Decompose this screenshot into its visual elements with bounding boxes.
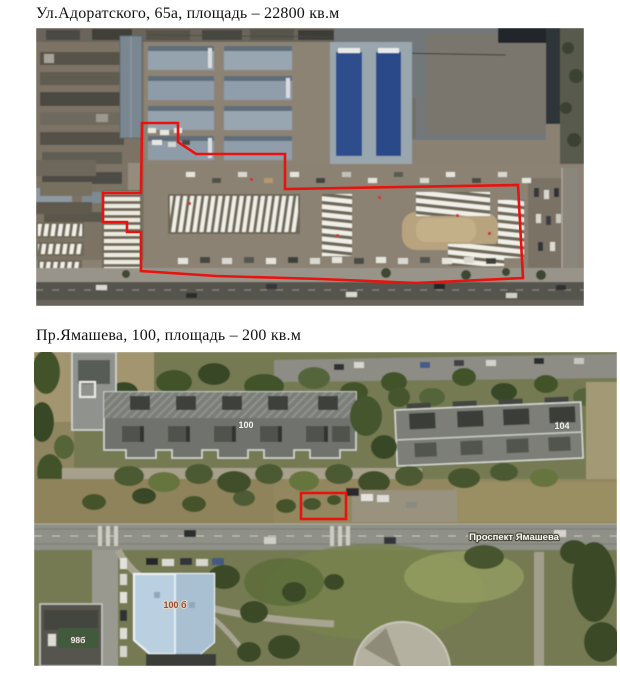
map2-building-104 (395, 396, 584, 466)
building-label-100: 100 (238, 420, 253, 430)
satellite-map-adoratskogo (36, 28, 584, 306)
listing-caption-1: Ул.Адоратского, 65а, площадь – 22800 кв.… (36, 5, 339, 23)
map1-terrain (36, 28, 584, 306)
map2-terrain (34, 352, 617, 666)
building-label-98b: 98б (71, 635, 86, 645)
listing-caption-2: Пр.Ямашева, 100, площадь – 200 кв.м (36, 327, 301, 345)
building-label-100b: 100 б (163, 600, 187, 610)
street-label-yamasheva: Проспект Ямашева (469, 532, 560, 543)
building-label-104: 104 (554, 421, 569, 431)
map1-blue-hangars (330, 42, 412, 164)
document-page: Ул.Адоратского, 65а, площадь – 22800 кв.… (0, 0, 620, 678)
map1-street (36, 268, 584, 306)
satellite-map-yamasheva: 100 104 Проспект Ямашева 100 б 98б (34, 352, 617, 666)
